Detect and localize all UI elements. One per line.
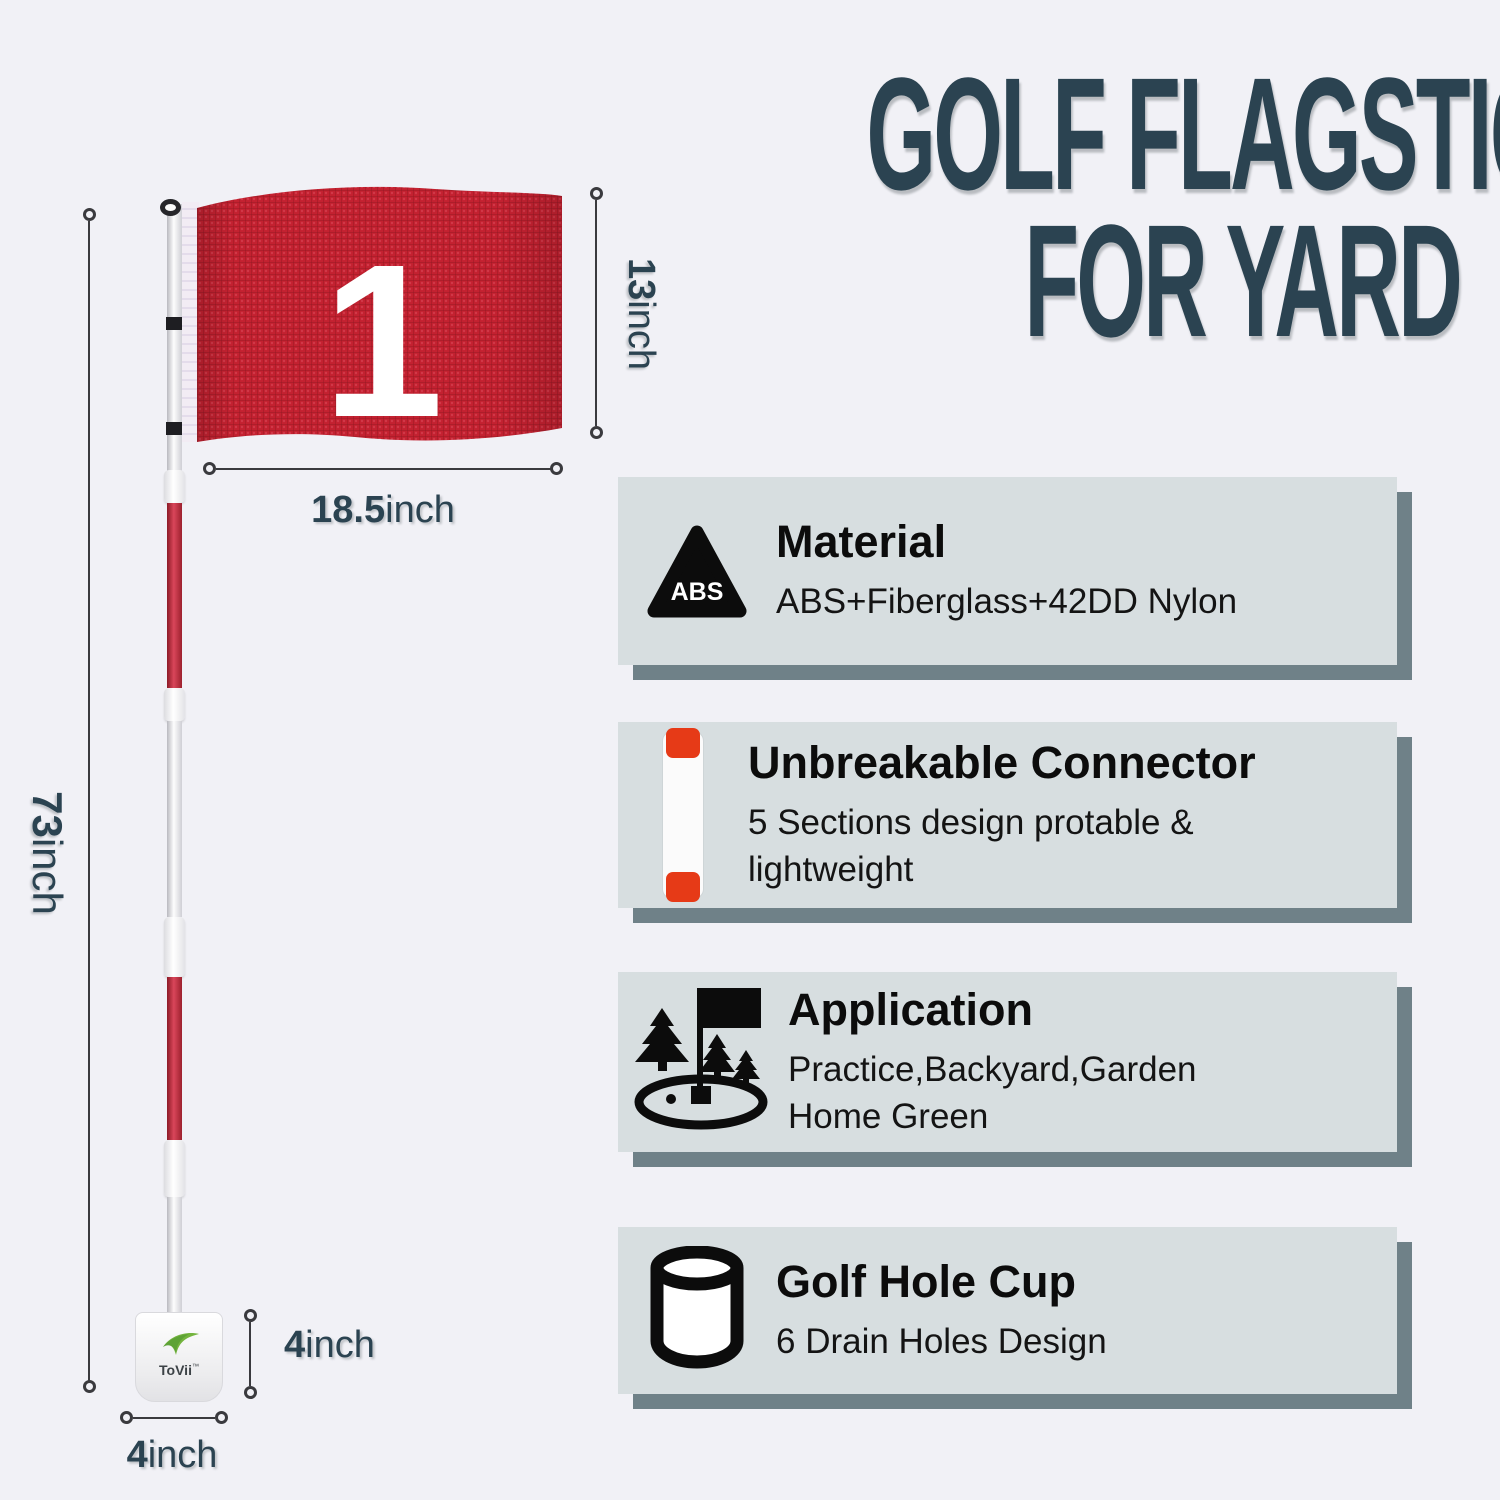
pole-band [166,422,183,435]
feature-heading: Material [776,516,1377,568]
dim-label-flag-height: 13inch [615,234,667,394]
dim-line-cup-diameter [133,1417,215,1419]
dim-endpoint [244,1386,257,1399]
dim-endpoint [215,1411,228,1424]
dim-label-cup-diameter: 4inch [112,1434,232,1477]
golf-green-icon [629,986,777,1138]
product-infographic: GOLF FLAGSTICK FOR YARD [0,0,1500,1500]
feature-card-hole-cup: Golf Hole Cup 6 Drain Holes Design [618,1227,1397,1394]
pole-red-section [167,977,182,1140]
brand-trademark: ™ [192,1364,199,1371]
title-line-2: FOR YARD [866,207,1460,354]
dim-endpoint [83,1380,96,1393]
flag-number: 1 [322,220,443,458]
dim-line-flag-height [595,200,597,426]
dim-endpoint [550,462,563,475]
flag: 1 [185,178,575,458]
pole-red-section [167,503,182,688]
dim-endpoint [590,426,603,439]
golf-hole-cup: ToVii™ [135,1312,223,1402]
feature-card-material: ABS Material ABS+Fiberglass+42DD Nylon [618,477,1397,665]
brand-leaf-icon [157,1331,201,1357]
dim-label-pole-height: 73inch [21,773,73,933]
dim-endpoint [203,462,216,475]
dim-endpoint [120,1411,133,1424]
feature-description: ABS+Fiberglass+42DD Nylon [776,578,1377,625]
feature-description: Practice,Backyard,Garden Home Green [788,1046,1377,1141]
dim-endpoint [83,208,96,221]
brand-logo: ToVii™ [144,1331,214,1380]
grommet-ring-icon [160,199,181,216]
pole-connector-sleeve [164,1140,185,1197]
dim-label-cup-height: 4inch [284,1324,375,1367]
feature-heading: Application [788,984,1377,1036]
feature-heading: Unbreakable Connector [748,737,1377,789]
dim-endpoint [590,187,603,200]
dim-line-flag-width [216,468,552,470]
dim-line-pole-height [88,221,90,1381]
pole-connector-sleeve [164,917,185,977]
feature-description: 6 Drain Holes Design [776,1318,1377,1365]
feature-heading: Golf Hole Cup [776,1256,1377,1308]
pole-band [166,317,183,330]
golf-hole-cup-icon [649,1246,745,1376]
abs-icon-label: ABS [671,578,724,606]
dim-line-cup-height [249,1322,251,1386]
pole-silver-section [167,721,182,917]
pole-connector-sleeve [164,470,185,503]
brand-name: ToVii [159,1362,192,1378]
feature-card-connector: Unbreakable Connector 5 Sections design … [618,722,1397,908]
title-line-1: GOLF FLAGSTICK [866,60,1460,207]
feature-card-application: Application Practice,Backyard,Garden Hom… [618,972,1397,1152]
dim-endpoint [244,1309,257,1322]
feature-description: 5 Sections design protable & lightweight [748,799,1377,894]
dim-label-flag-width: 18.5inch [283,489,483,532]
abs-triangle-icon: ABS [647,524,747,619]
pole-connector-icon [663,732,703,898]
pole-connector-sleeve [164,688,185,721]
page-title: GOLF FLAGSTICK FOR YARD [866,60,1460,354]
